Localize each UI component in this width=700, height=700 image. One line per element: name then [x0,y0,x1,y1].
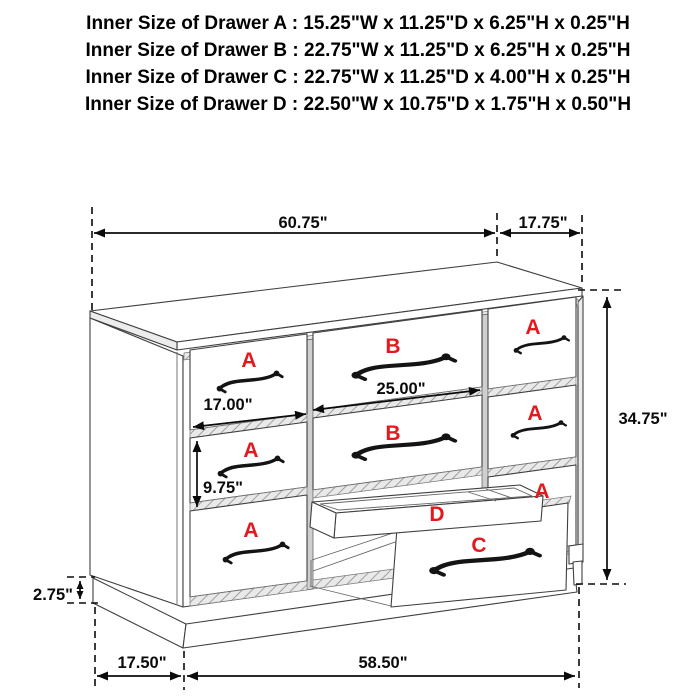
dim-text-top-depth: 17.75" [518,214,567,232]
drawer-face-right-middle [488,385,576,469]
dim-text-drawer-a-width: 17.00" [203,396,252,414]
foot-leg [573,561,582,585]
cabinet-right-edge [578,296,583,551]
label-drawer-b-middle: B [385,422,400,445]
label-drawer-a-right-middle: A [527,402,542,425]
cabinet-left-side-panel [90,318,183,607]
drawer-face-left-bottom [190,495,307,597]
dim-text-base-height: 2.75" [33,586,73,604]
label-drawer-c: C [471,534,486,557]
dresser-dimension-diagram: Inner Size of Drawer A : 15.25"W x 11.25… [0,0,700,700]
label-drawer-a-right-top: A [525,316,540,339]
label-drawer-d: D [429,503,444,526]
label-drawer-a-left-top: A [241,349,256,372]
label-drawer-a-right-bottom: A [534,480,549,503]
header-line-drawer-d: Inner Size of Drawer D : 22.50"W x 10.75… [85,94,631,115]
dim-text-overall-height: 34.75" [618,410,667,428]
dim-text-drawer-b-width: 25.00" [376,380,425,398]
dim-text-base-side-depth: 17.50" [117,654,166,672]
dim-text-drawer-a-height: 9.75" [203,479,243,497]
header-line-drawer-b: Inner Size of Drawer B : 22.75"W x 11.25… [85,40,630,61]
dresser-drawing [90,262,583,648]
header-line-drawer-a: Inner Size of Drawer A : 15.25"W x 11.25… [86,13,630,34]
dim-text-top-width: 60.75" [278,214,327,232]
header-line-drawer-c: Inner Size of Drawer C : 22.75"W x 11.25… [85,67,630,88]
label-drawer-b-top: B [385,335,400,358]
dresser-dimension-sheet: Inner Size of Drawer A : 15.25"W x 11.25… [0,0,700,700]
left-drawer-column [190,334,307,606]
dim-text-base-front-width: 58.50" [358,654,407,672]
header-size-list: Inner Size of Drawer A : 15.25"W x 11.25… [85,13,631,115]
label-drawer-a-left-bottom: A [243,519,258,542]
label-drawer-a-left-middle: A [243,439,258,462]
